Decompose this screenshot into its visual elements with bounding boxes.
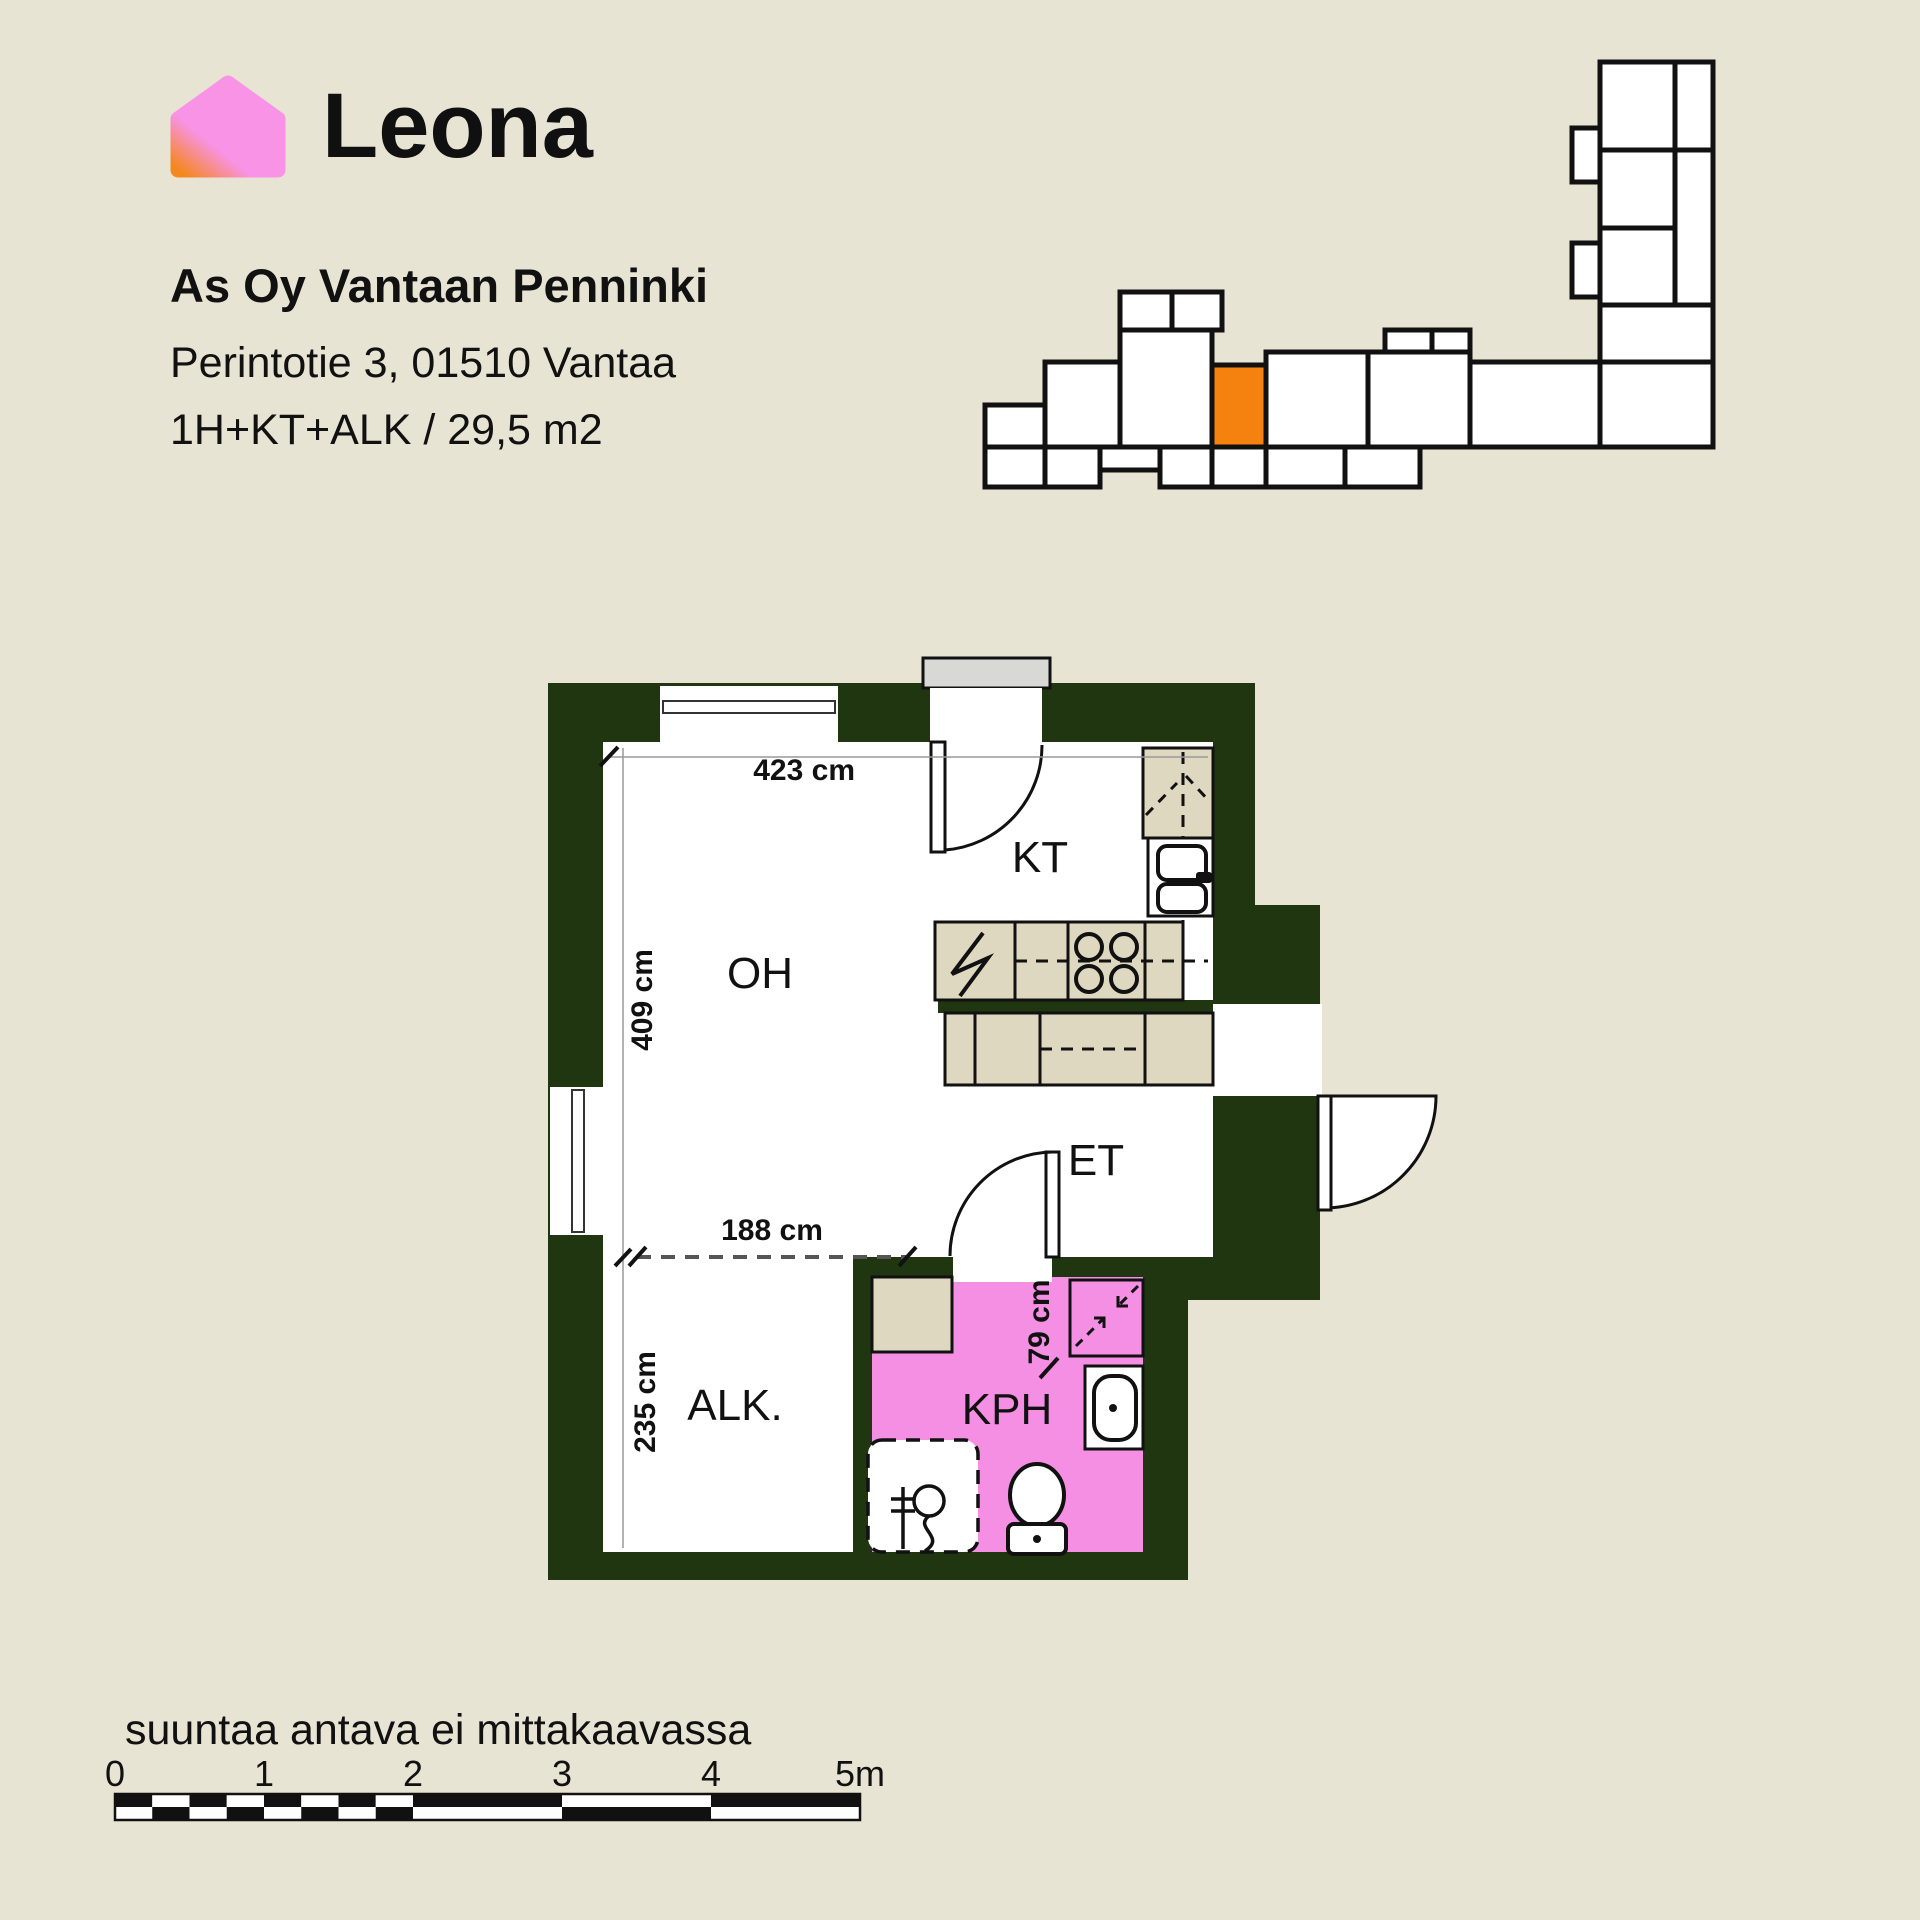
scale-label-1: 1 (254, 1753, 274, 1794)
site-unit-cell (1368, 352, 1470, 447)
floor-plan: 423 cm 409 cm 188 cm 235 cm 79 cm OH KT … (548, 658, 1436, 1580)
site-unit-cell (1600, 150, 1675, 228)
toilet (1008, 1464, 1066, 1554)
kph-door-leaf (1046, 1152, 1059, 1257)
site-unit-cell (1600, 362, 1713, 447)
bathroom-cabinet (872, 1277, 952, 1352)
site-unit-cell (1432, 330, 1470, 352)
washer-reservation (868, 1440, 978, 1552)
room-label-oh: OH (727, 949, 793, 998)
site-unit-cell (1045, 447, 1100, 487)
washbasin (1085, 1366, 1143, 1449)
dim-423: 423 cm (753, 754, 855, 787)
site-unit-cell (1120, 330, 1212, 447)
drawing-canvas: 423 cm 409 cm 188 cm 235 cm 79 cm OH KT … (0, 0, 1920, 1920)
scale-label-2: 2 (403, 1753, 423, 1794)
kitchen-sink (1148, 838, 1213, 916)
dim-409: 409 cm (626, 949, 659, 1051)
site-unit-cell (985, 447, 1045, 487)
sink-faucet (1196, 872, 1212, 883)
site-unit-cell (1212, 447, 1266, 487)
disclaimer-text: suuntaa antava ei mittakaavassa (125, 1706, 751, 1755)
front-door-gap (1213, 1004, 1322, 1096)
site-unit-cell (1045, 362, 1120, 447)
front-door-leaf (1318, 1096, 1331, 1210)
site-unit-cell (1600, 305, 1713, 362)
site-unit-cell (1345, 447, 1420, 487)
site-unit-cell (1572, 243, 1600, 297)
site-unit-cell (1470, 362, 1600, 447)
scale-label-0: 0 (105, 1753, 125, 1794)
site-unit-cell (1675, 150, 1713, 305)
balcony-door-gap (930, 688, 1042, 742)
site-unit-cell (1266, 352, 1368, 447)
dim-235: 235 cm (629, 1351, 662, 1453)
scale-label-3: 3 (552, 1753, 572, 1794)
site-unit-cell (985, 405, 1045, 447)
window-top-sill (663, 701, 835, 713)
scale-bar: 0 1 2 3 4 5m (105, 1753, 885, 1820)
site-plan (985, 62, 1713, 487)
scale-label-4: 4 (701, 1753, 721, 1794)
site-unit-cell (1600, 62, 1675, 150)
wardrobes (945, 1013, 1213, 1085)
site-unit-cell (1120, 292, 1172, 330)
site-unit-cell (1572, 128, 1600, 182)
room-label-alk: ALK. (687, 1381, 782, 1430)
room-label-kph: KPH (962, 1385, 1052, 1434)
kitchen-counter (935, 922, 1208, 1000)
window-left-sill (572, 1090, 584, 1232)
site-unit-cell (1172, 292, 1222, 330)
scale-label-5m: 5m (835, 1753, 885, 1794)
site-unit-cell (1160, 447, 1212, 487)
room-label-kt: KT (1012, 833, 1068, 882)
dim-79: 79 cm (1023, 1279, 1056, 1364)
room-label-et: ET (1068, 1136, 1124, 1185)
site-unit-cell (1100, 447, 1160, 470)
front-door-swing (1324, 1096, 1436, 1208)
site-unit-cell (1266, 447, 1345, 487)
site-unit-cell (1675, 62, 1713, 150)
dim-188: 188 cm (721, 1214, 823, 1247)
site-unit-cell (1385, 330, 1432, 352)
kph-door-gap (953, 1257, 1052, 1282)
site-unit-cell (1600, 228, 1675, 305)
site-unit-highlighted (1212, 365, 1266, 447)
balcony-threshold (923, 658, 1050, 688)
balcony-door-leaf (931, 742, 945, 852)
